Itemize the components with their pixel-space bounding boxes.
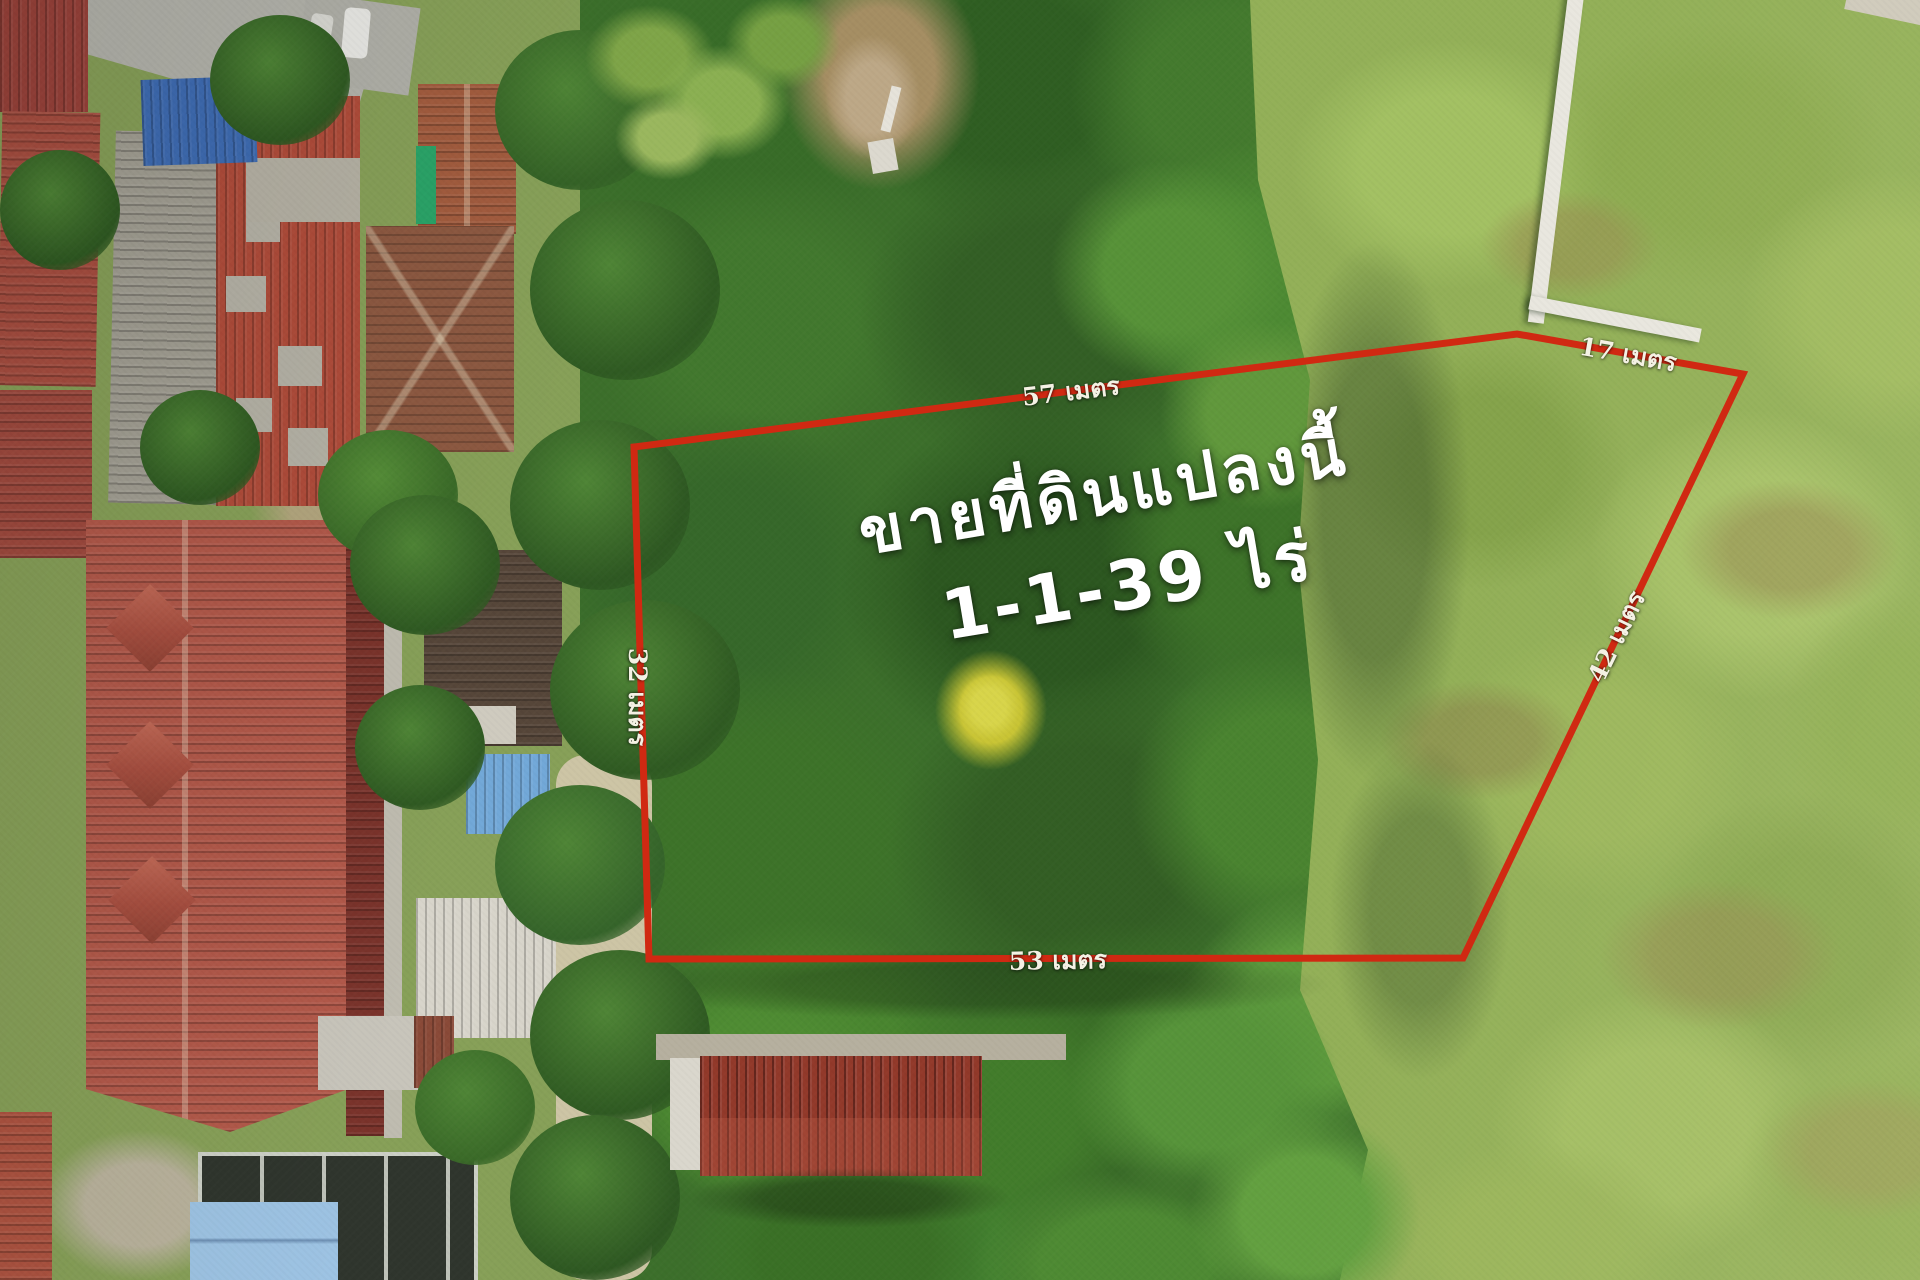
- aerial-photo: ขายที่ดินแปลงนี้ 1-1-39 ไร่ 57 เมตร 17 เ…: [0, 0, 1920, 1280]
- dimension-label-bottom: 53 เมตร: [1009, 940, 1108, 982]
- dimension-label-left: 32 เมตร: [617, 648, 657, 746]
